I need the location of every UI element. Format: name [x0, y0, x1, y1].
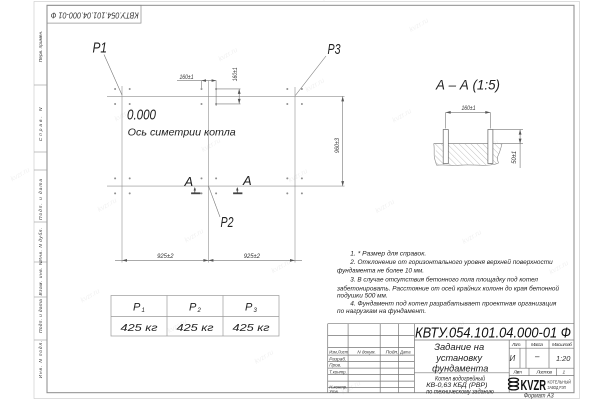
svg-text:Взам. инв. N: Взам. инв. N	[38, 261, 44, 295]
svg-text:Задание на: Задание на	[434, 342, 484, 353]
svg-text:КВТУ.054.101.04.000-01 Ф: КВТУ.054.101.04.000-01 Ф	[415, 324, 571, 341]
svg-text:Формат А3: Формат А3	[524, 393, 554, 400]
svg-text:50±1: 50±1	[512, 151, 518, 164]
svg-text:Ось симетрии котла: Ось симетрии котла	[128, 126, 236, 138]
svg-text:3. В случае отсутствия бетонно: 3. В случае отсутствия бетонного пола пл…	[350, 275, 538, 283]
svg-text:А – А (1:5): А – А (1:5)	[435, 77, 500, 93]
svg-text:160±1: 160±1	[180, 75, 194, 81]
svg-text:925±2: 925±2	[157, 254, 174, 260]
svg-text:Р3: Р3	[328, 42, 341, 58]
svg-text:КОТЕЛЬНЫЙ: КОТЕЛЬНЫЙ	[548, 378, 572, 385]
svg-text:Подп.: Подп.	[386, 350, 399, 356]
svg-text:Р2: Р2	[221, 215, 234, 231]
svg-text:160±1: 160±1	[462, 106, 476, 112]
svg-text:160±1: 160±1	[233, 67, 239, 81]
svg-text:забетонировать. Расстояние от: забетонировать. Расстояние от осей крайн…	[336, 284, 559, 292]
svg-text:по нагрузкам на фундамент.: по нагрузкам на фундамент.	[337, 307, 426, 315]
svg-text:4. Фундамент под котел разраба: 4. Фундамент под котел разрабатывает про…	[350, 300, 556, 308]
svg-text:Р1: Р1	[93, 41, 108, 57]
svg-text:925±2: 925±2	[244, 254, 261, 260]
svg-text:N докум.: N докум.	[357, 350, 375, 356]
svg-text:Разраб.: Разраб.	[329, 357, 346, 363]
svg-text:Пров.: Пров.	[329, 363, 341, 369]
svg-text:Утв.: Утв.	[329, 389, 339, 395]
svg-text:Т.контр.: Т.контр.	[329, 369, 347, 375]
svg-text:КВТУ.054.101.04.000-01 Ф: КВТУ.054.101.04.000-01 Ф	[50, 10, 138, 20]
svg-text:KVZR: KVZR	[521, 377, 547, 394]
svg-text:Масштаб: Масштаб	[552, 342, 572, 348]
svg-text:Перв. примен.: Перв. примен.	[38, 31, 44, 63]
svg-text:960±3: 960±3	[335, 137, 341, 153]
svg-text:2: 2	[197, 308, 202, 314]
svg-text:подушки 500 мм.: подушки 500 мм.	[337, 291, 388, 299]
svg-text:1. * Размер для справок.: 1. * Размер для справок.	[350, 249, 426, 257]
svg-text:А: А	[184, 174, 194, 189]
svg-text:Лист: Лист	[513, 369, 523, 375]
svg-text:1:20: 1:20	[556, 354, 571, 363]
svg-text:Котел водогрейный: Котел водогрейный	[435, 376, 486, 383]
svg-text:фундамента не более 10 мм.: фундамента не более 10 мм.	[337, 267, 424, 275]
svg-text:Инв. N дубл.: Инв. N дубл.	[38, 228, 44, 262]
svg-text:фундамента: фундамента	[432, 364, 488, 375]
svg-text:Листов: Листов	[536, 369, 553, 375]
svg-text:425 кг: 425 кг	[233, 322, 270, 334]
svg-text:Лит.: Лит.	[511, 342, 521, 348]
svg-text:1: 1	[563, 369, 566, 375]
svg-text:Подп. и дата: Подп. и дата	[38, 179, 44, 220]
svg-text:по техническому заданию: по техническому заданию	[426, 389, 494, 395]
svg-text:Р: Р	[133, 302, 141, 314]
svg-text:Изм.Лист: Изм.Лист	[329, 350, 348, 356]
svg-text:Инв. N подл.: Инв. N подл.	[38, 341, 44, 379]
svg-text:2. Отклонение от горизонтально: 2. Отклонение от горизонтального уровня …	[349, 258, 553, 266]
svg-text:Масса: Масса	[531, 342, 543, 348]
svg-text:1: 1	[142, 308, 145, 314]
svg-text:ЗАВОД РЭП: ЗАВОД РЭП	[548, 385, 567, 390]
svg-text:КВ-0,63 КБД (РВР): КВ-0,63 КБД (РВР)	[426, 383, 487, 389]
svg-text:Дата: Дата	[399, 350, 410, 356]
svg-text:Р: Р	[245, 302, 253, 314]
svg-text:И: И	[510, 354, 516, 363]
svg-text:–: –	[534, 352, 540, 361]
svg-text:установку: установку	[435, 353, 483, 364]
svg-text:А: А	[242, 173, 252, 188]
svg-text:Р: Р	[189, 302, 197, 314]
svg-text:0.000: 0.000	[127, 107, 157, 124]
svg-text:425 кг: 425 кг	[177, 322, 214, 334]
svg-text:425 кг: 425 кг	[121, 322, 158, 334]
svg-text:Подп. и дата: Подп. и дата	[38, 299, 44, 333]
